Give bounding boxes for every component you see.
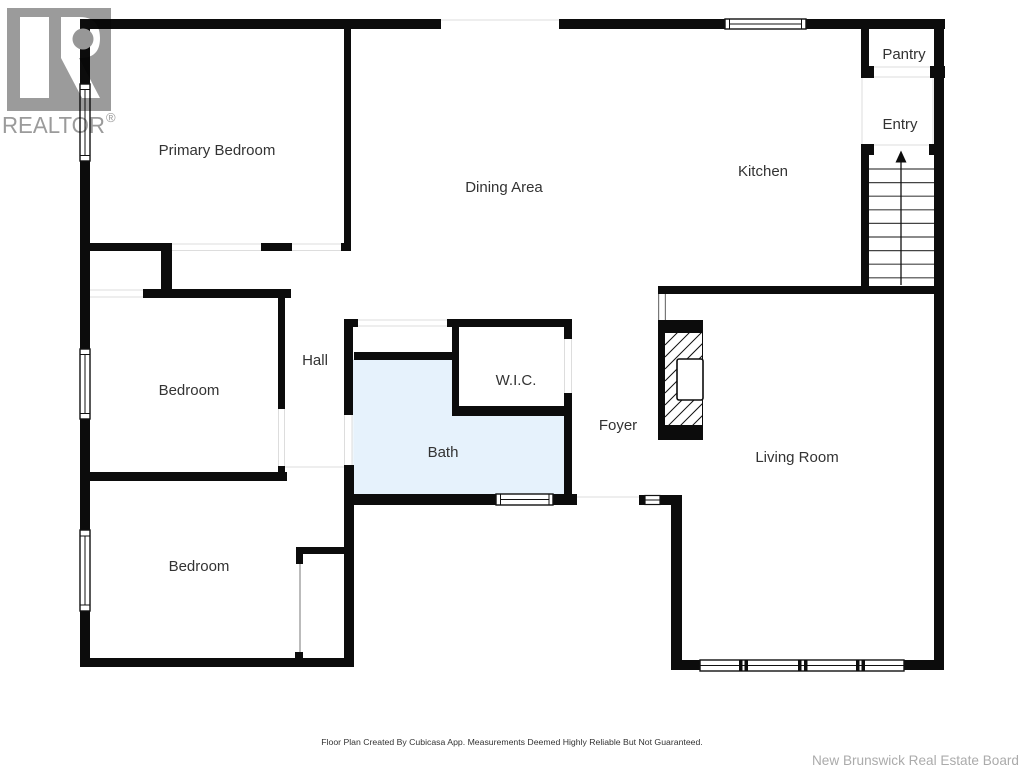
svg-text:Pantry: Pantry xyxy=(882,46,926,63)
svg-text:Kitchen: Kitchen xyxy=(738,163,788,180)
svg-text:Floor Plan Created By Cubicasa: Floor Plan Created By Cubicasa App. Meas… xyxy=(321,737,702,747)
svg-text:REALTOR: REALTOR xyxy=(2,112,105,138)
svg-text:Primary Bedroom: Primary Bedroom xyxy=(159,142,276,159)
svg-text:W.I.C.: W.I.C. xyxy=(496,372,537,389)
svg-text:Bath: Bath xyxy=(428,444,459,461)
svg-text:Entry: Entry xyxy=(882,116,918,133)
svg-text:Living Room: Living Room xyxy=(755,449,838,466)
svg-text:Bedroom: Bedroom xyxy=(169,558,230,575)
svg-text:Bedroom: Bedroom xyxy=(159,382,220,399)
svg-text:Hall: Hall xyxy=(302,352,328,369)
svg-text:®: ® xyxy=(106,110,116,125)
svg-text:New Brunswick Real Estate Boar: New Brunswick Real Estate Board xyxy=(812,753,1019,768)
svg-text:Foyer: Foyer xyxy=(599,417,637,434)
svg-text:Dining Area: Dining Area xyxy=(465,179,543,196)
